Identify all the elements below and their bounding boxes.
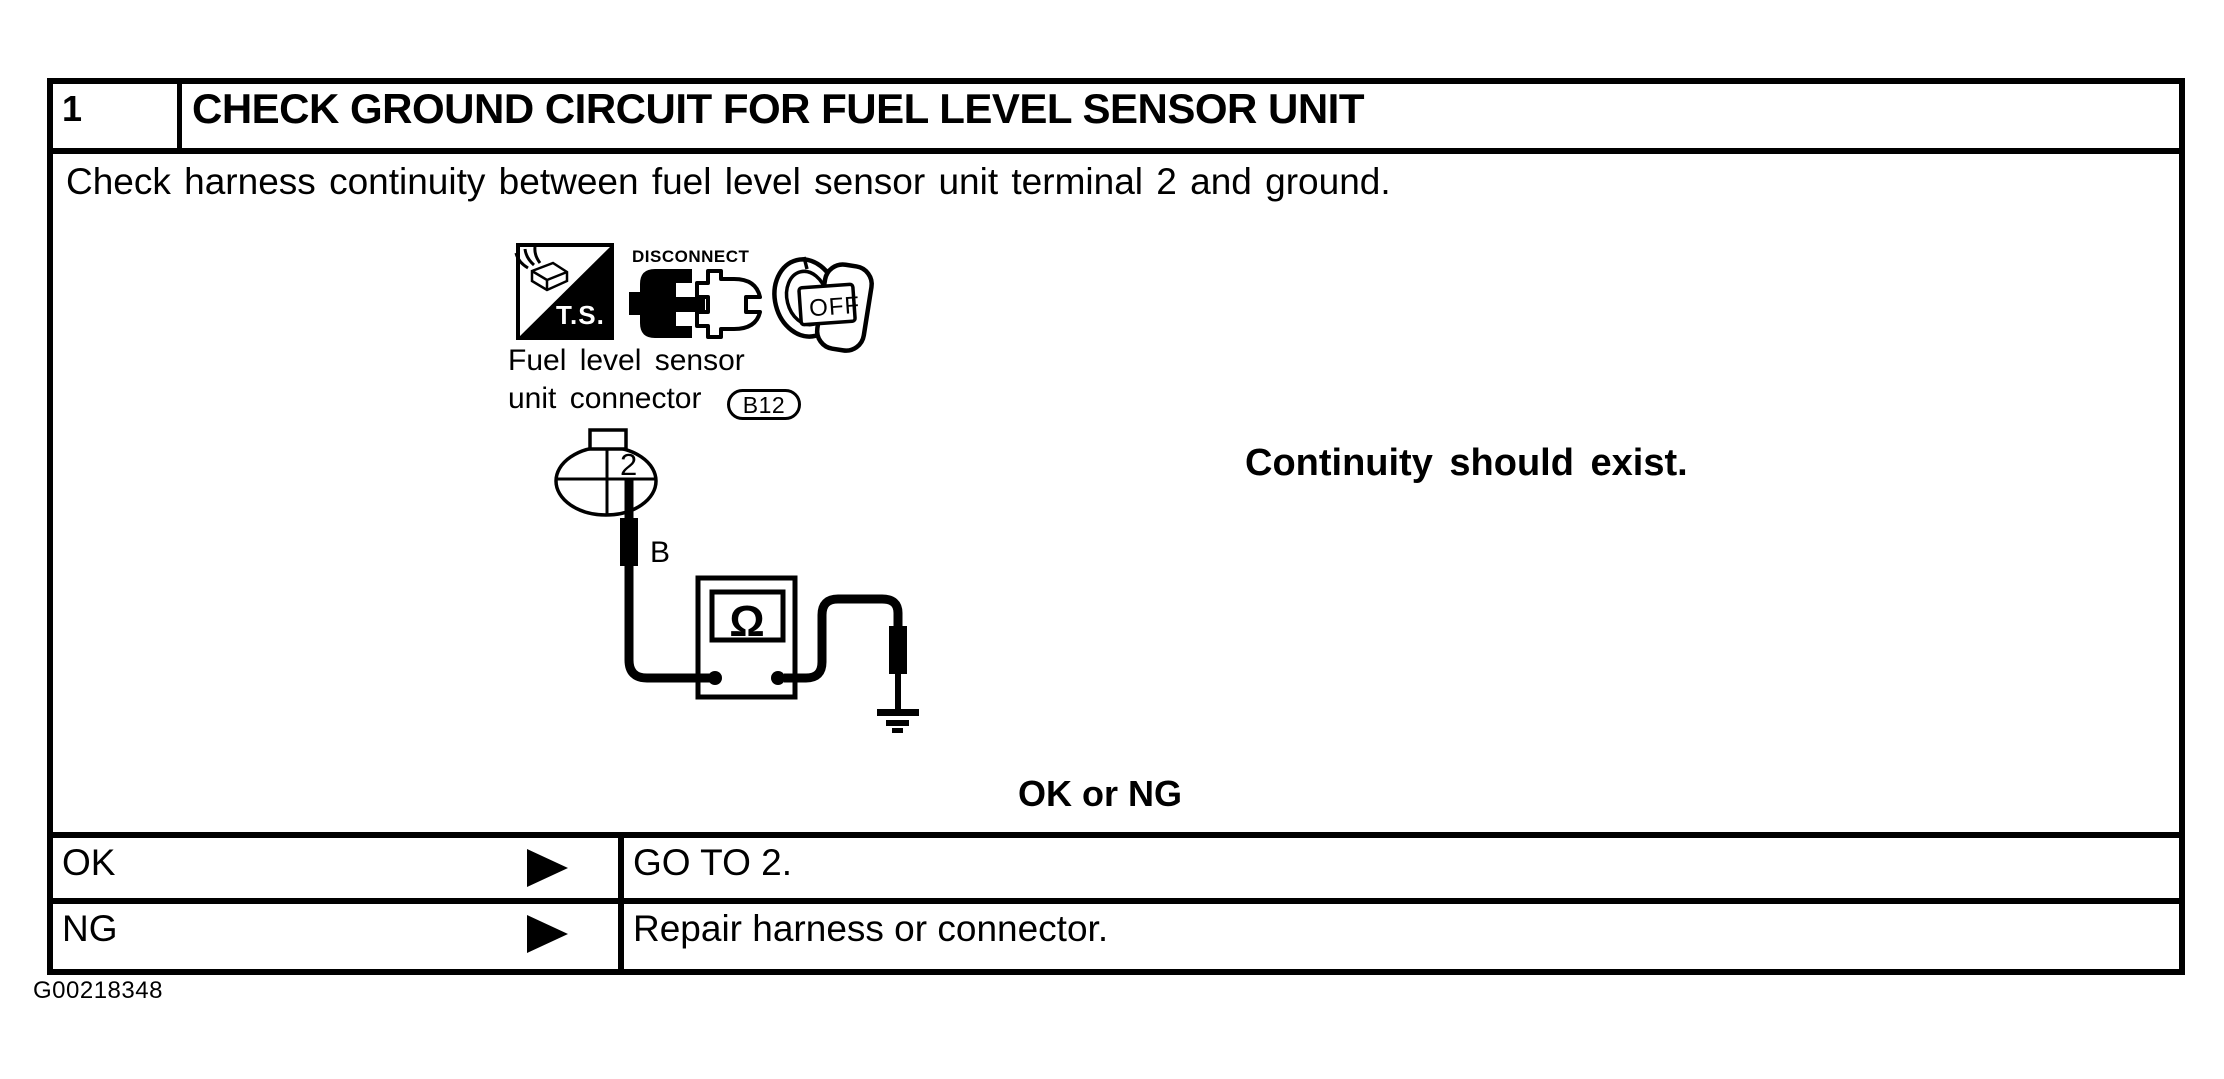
result-arrow-icon — [527, 915, 568, 953]
terminal-number: 2 — [620, 447, 637, 482]
connector-face: 2 — [556, 430, 656, 515]
step-title: CHECK GROUND CIRCUIT FOR FUEL LEVEL SENS… — [192, 88, 1364, 130]
decision-label: OK or NG — [1018, 776, 1182, 812]
ignition-key-off-icon: OFF — [766, 253, 874, 354]
probe-right — [889, 626, 907, 674]
ts-icon: T.S. — [516, 245, 612, 338]
outcome-condition-ok: OK — [62, 844, 115, 881]
ground-symbol-icon — [877, 709, 919, 733]
outcome-condition-ng: NG — [62, 910, 118, 947]
ignition-off-label: OFF — [808, 292, 861, 322]
expected-result-text: Continuity should exist. — [1245, 444, 1688, 482]
instruction-text: Check harness continuity between fuel le… — [66, 163, 1391, 200]
outcome-column-divider — [618, 832, 624, 975]
connector-caption-line2: unit connector — [508, 384, 701, 414]
ohm-symbol: Ω — [729, 597, 764, 646]
result-arrow-icon — [527, 849, 568, 887]
outcome-action-ng: Repair harness or connector. — [633, 910, 1108, 947]
outcome-row-divider — [47, 898, 2185, 904]
step-number-divider — [177, 78, 182, 154]
step-number: 1 — [62, 91, 82, 127]
outcome-table-top-border — [47, 832, 2185, 838]
ts-badge-label: T.S. — [556, 300, 605, 330]
wire-color-label: B — [650, 536, 670, 569]
disconnect-caption: DISCONNECT — [632, 247, 750, 266]
header-divider — [47, 148, 2185, 154]
outcome-action-ok: GO TO 2. — [633, 844, 792, 881]
test-diagram: T.S. DISCONNECT OFF 2 — [500, 240, 970, 770]
connector-code-badge: B12 — [727, 389, 801, 420]
probe-left — [620, 518, 638, 566]
manual-page: 1 CHECK GROUND CIRCUIT FOR FUEL LEVEL SE… — [0, 0, 2224, 1079]
step-frame — [47, 78, 2185, 975]
disconnect-icon: DISCONNECT — [629, 247, 760, 338]
figure-code: G00218348 — [33, 979, 163, 1003]
connector-caption-line1: Fuel level sensor — [508, 346, 745, 376]
